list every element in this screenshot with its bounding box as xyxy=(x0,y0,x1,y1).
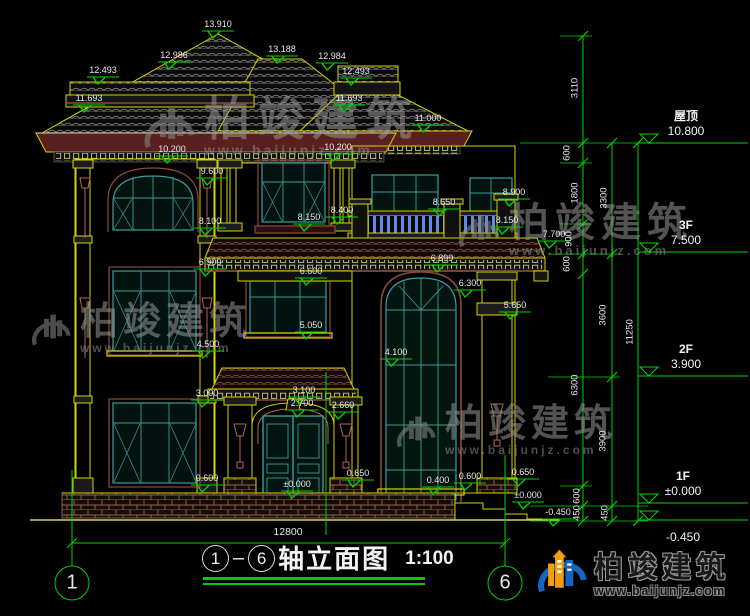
title-axis-end-bubble: 6 xyxy=(248,545,275,572)
marker-tick-icon xyxy=(155,155,189,165)
marker-tick-icon xyxy=(190,399,224,409)
elevation-marker: 8.900 xyxy=(497,188,531,208)
watermark-logo-icon xyxy=(395,411,437,453)
company-logo: 柏竣建筑 www.baijunjz.com xyxy=(536,547,730,604)
drawing-title: 1 – 6 轴立面图 1:100 xyxy=(202,545,454,572)
elevation-marker: 0.650 xyxy=(506,468,540,488)
chain-dimension-label: 3600 xyxy=(598,304,608,325)
brand-watermark: 柏竣建筑www.baijunjz.com xyxy=(395,405,617,458)
elevation-marker: 8.150 xyxy=(292,213,326,233)
title-text: 轴立面图 xyxy=(278,546,390,572)
marker-tick-icon xyxy=(425,264,459,274)
title-scale: 1:100 xyxy=(405,548,454,570)
elevation-marker: 10.200 xyxy=(155,145,189,165)
elevation-marker: 0.650 xyxy=(341,469,375,489)
marker-tick-icon xyxy=(190,484,224,494)
marker-tick-icon xyxy=(339,77,373,87)
elevation-marker: 8.400 xyxy=(325,206,359,226)
elevation-marker: 0.400 xyxy=(421,476,455,496)
elevation-marker: -0.450 xyxy=(541,508,575,528)
marker-tick-icon xyxy=(195,177,229,187)
company-name: 柏竣建筑 xyxy=(594,553,730,583)
marker-tick-icon xyxy=(341,479,375,489)
title-underline-2 xyxy=(203,583,425,585)
axis-bubble: 6 xyxy=(488,566,523,601)
chain-dimension-label: 900 xyxy=(564,231,574,247)
title-underline-1 xyxy=(203,577,425,580)
marker-tick-icon xyxy=(332,104,366,114)
marker-tick-icon xyxy=(453,289,487,299)
elevation-marker: ±0.000 xyxy=(280,480,314,500)
marker-tick-icon xyxy=(498,311,532,321)
marker-tick-icon xyxy=(193,268,227,278)
elevation-marker: 3.000 xyxy=(190,389,224,409)
marker-tick-icon xyxy=(285,409,319,419)
company-website: www.baijunjz.com xyxy=(594,584,730,598)
chain-dimension-label: 3900 xyxy=(598,430,608,451)
elevation-marker: 5.050 xyxy=(294,321,328,341)
marker-tick-icon xyxy=(511,501,545,511)
elevation-marker: 6.900 xyxy=(193,258,227,278)
marker-tick-icon xyxy=(506,478,540,488)
marker-tick-icon xyxy=(321,153,355,163)
marker-tick-icon xyxy=(86,76,120,86)
elevation-marker: 13.910 xyxy=(201,20,235,40)
marker-tick-icon xyxy=(72,104,106,114)
level-marker: 屋顶10.800 xyxy=(668,109,705,139)
marker-tick-icon xyxy=(379,358,413,368)
marker-tick-icon xyxy=(292,223,326,233)
elevation-marker: 2.700 xyxy=(285,399,319,419)
chain-dimension-label: 600 xyxy=(562,145,572,161)
overall-width-dimension: 12800 xyxy=(273,526,302,538)
company-logo-icon xyxy=(536,547,588,604)
watermark-logo-icon xyxy=(30,309,72,351)
marker-tick-icon xyxy=(193,227,227,237)
chain-dimension-label: 1800 xyxy=(570,182,580,203)
title-dash: – xyxy=(233,547,244,570)
marker-tick-icon xyxy=(453,482,487,492)
elevation-marker: 5.650 xyxy=(498,301,532,321)
chain-dimension-label: 11250 xyxy=(625,319,635,345)
marker-tick-icon xyxy=(325,216,359,226)
elevation-marker: 12.493 xyxy=(339,67,373,87)
chain-dimension-label: 450 xyxy=(572,505,582,521)
chain-dimension-label: 3110 xyxy=(570,78,580,98)
elevation-marker: 0.600 xyxy=(190,474,224,494)
elevation-marker: 11.693 xyxy=(72,94,106,114)
elevation-marker: 2.660 xyxy=(326,401,360,421)
marker-tick-icon xyxy=(294,277,328,287)
chain-dimension-label: 3300 xyxy=(599,187,609,208)
elevation-marker: 8.100 xyxy=(193,217,227,237)
elevation-marker: 6.899 xyxy=(425,254,459,274)
marker-tick-icon xyxy=(541,518,575,528)
marker-tick-icon xyxy=(280,490,314,500)
elevation-marker: 9.600 xyxy=(195,167,229,187)
marker-tick-icon xyxy=(201,30,235,40)
marker-tick-icon xyxy=(265,55,299,65)
chain-dimension-label: 600 xyxy=(572,488,582,504)
marker-tick-icon xyxy=(411,124,445,134)
elevation-marker: 4.100 xyxy=(379,348,413,368)
level-marker: 3F7.500 xyxy=(671,218,701,248)
elevation-marker: ±0.000 xyxy=(511,491,545,511)
level-marker: 2F3.900 xyxy=(671,342,701,372)
elevation-marker: 0.600 xyxy=(453,472,487,492)
level-marker: 1F±0.000 xyxy=(665,469,702,499)
marker-tick-icon xyxy=(427,208,461,218)
marker-tick-icon xyxy=(497,198,531,208)
chain-dimension-label: 450 xyxy=(600,505,610,521)
marker-tick-icon xyxy=(157,61,191,71)
elevation-marker: 8.650 xyxy=(427,198,461,218)
elevation-marker: 12.493 xyxy=(86,66,120,86)
elevation-marker: 11.000 xyxy=(411,114,445,134)
elevation-marker: 8.150 xyxy=(490,216,524,236)
elevation-marker: 10.200 xyxy=(321,143,355,163)
cad-elevation-canvas: 1 – 6 轴立面图 1:100 12800 柏竣建筑 www xyxy=(0,0,750,616)
elevation-marker: 12.986 xyxy=(157,51,191,71)
chain-dimension-label: 600 xyxy=(562,256,572,272)
marker-tick-icon xyxy=(421,486,455,496)
axis-bubble: 1 xyxy=(55,566,90,601)
elevation-marker: 13.188 xyxy=(265,45,299,65)
elevation-marker: 4.500 xyxy=(191,340,225,360)
marker-tick-icon xyxy=(490,226,524,236)
marker-tick-icon xyxy=(294,331,328,341)
title-axis-start-bubble: 1 xyxy=(202,545,229,572)
marker-tick-icon xyxy=(191,350,225,360)
level-marker: -0.450 xyxy=(666,530,700,545)
elevation-marker: 6.300 xyxy=(453,279,487,299)
chain-dimension-label: 6300 xyxy=(570,374,580,395)
elevation-marker: 6.600 xyxy=(294,267,328,287)
marker-tick-icon xyxy=(326,411,360,421)
elevation-marker: 11.693 xyxy=(332,94,366,114)
